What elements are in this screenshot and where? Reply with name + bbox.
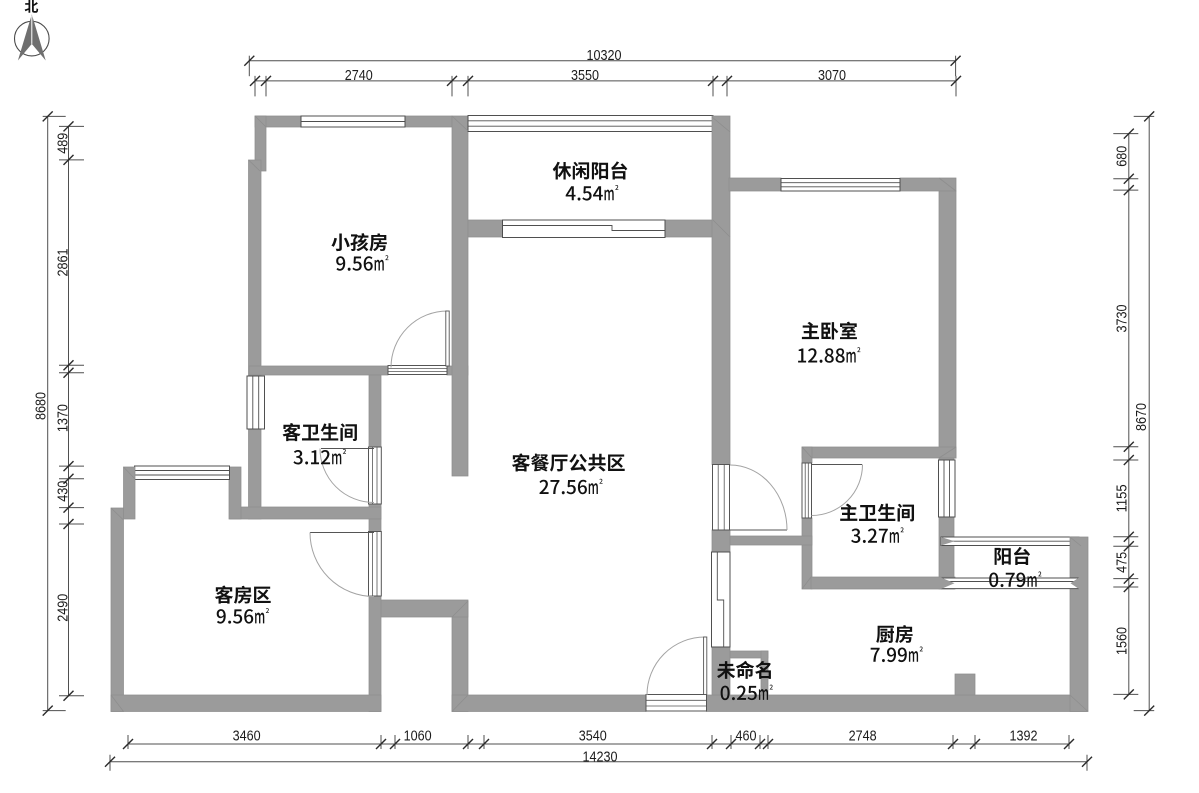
svg-text:2490: 2490 bbox=[56, 594, 72, 622]
svg-text:3550: 3550 bbox=[571, 68, 599, 84]
svg-text:475: 475 bbox=[1115, 552, 1131, 573]
svg-text:3070: 3070 bbox=[818, 68, 846, 84]
svg-text:1155: 1155 bbox=[1115, 484, 1131, 512]
svg-text:430: 430 bbox=[56, 481, 72, 502]
svg-text:1060: 1060 bbox=[404, 729, 432, 745]
svg-text:10320: 10320 bbox=[587, 48, 622, 64]
svg-text:1560: 1560 bbox=[1115, 627, 1131, 655]
svg-text:460: 460 bbox=[736, 729, 757, 745]
svg-text:3540: 3540 bbox=[579, 729, 607, 745]
svg-text:680: 680 bbox=[1115, 146, 1131, 167]
svg-text:8680: 8680 bbox=[34, 392, 50, 420]
svg-text:1370: 1370 bbox=[56, 404, 72, 432]
svg-text:3730: 3730 bbox=[1115, 305, 1131, 333]
svg-text:2748: 2748 bbox=[849, 729, 877, 745]
svg-text:8670: 8670 bbox=[1134, 403, 1150, 431]
svg-text:3460: 3460 bbox=[233, 729, 261, 745]
svg-text:2861: 2861 bbox=[56, 249, 72, 277]
svg-text:1392: 1392 bbox=[1010, 729, 1038, 745]
svg-text:14230: 14230 bbox=[583, 750, 618, 766]
svg-text:2740: 2740 bbox=[345, 68, 373, 84]
svg-text:489: 489 bbox=[56, 133, 72, 154]
